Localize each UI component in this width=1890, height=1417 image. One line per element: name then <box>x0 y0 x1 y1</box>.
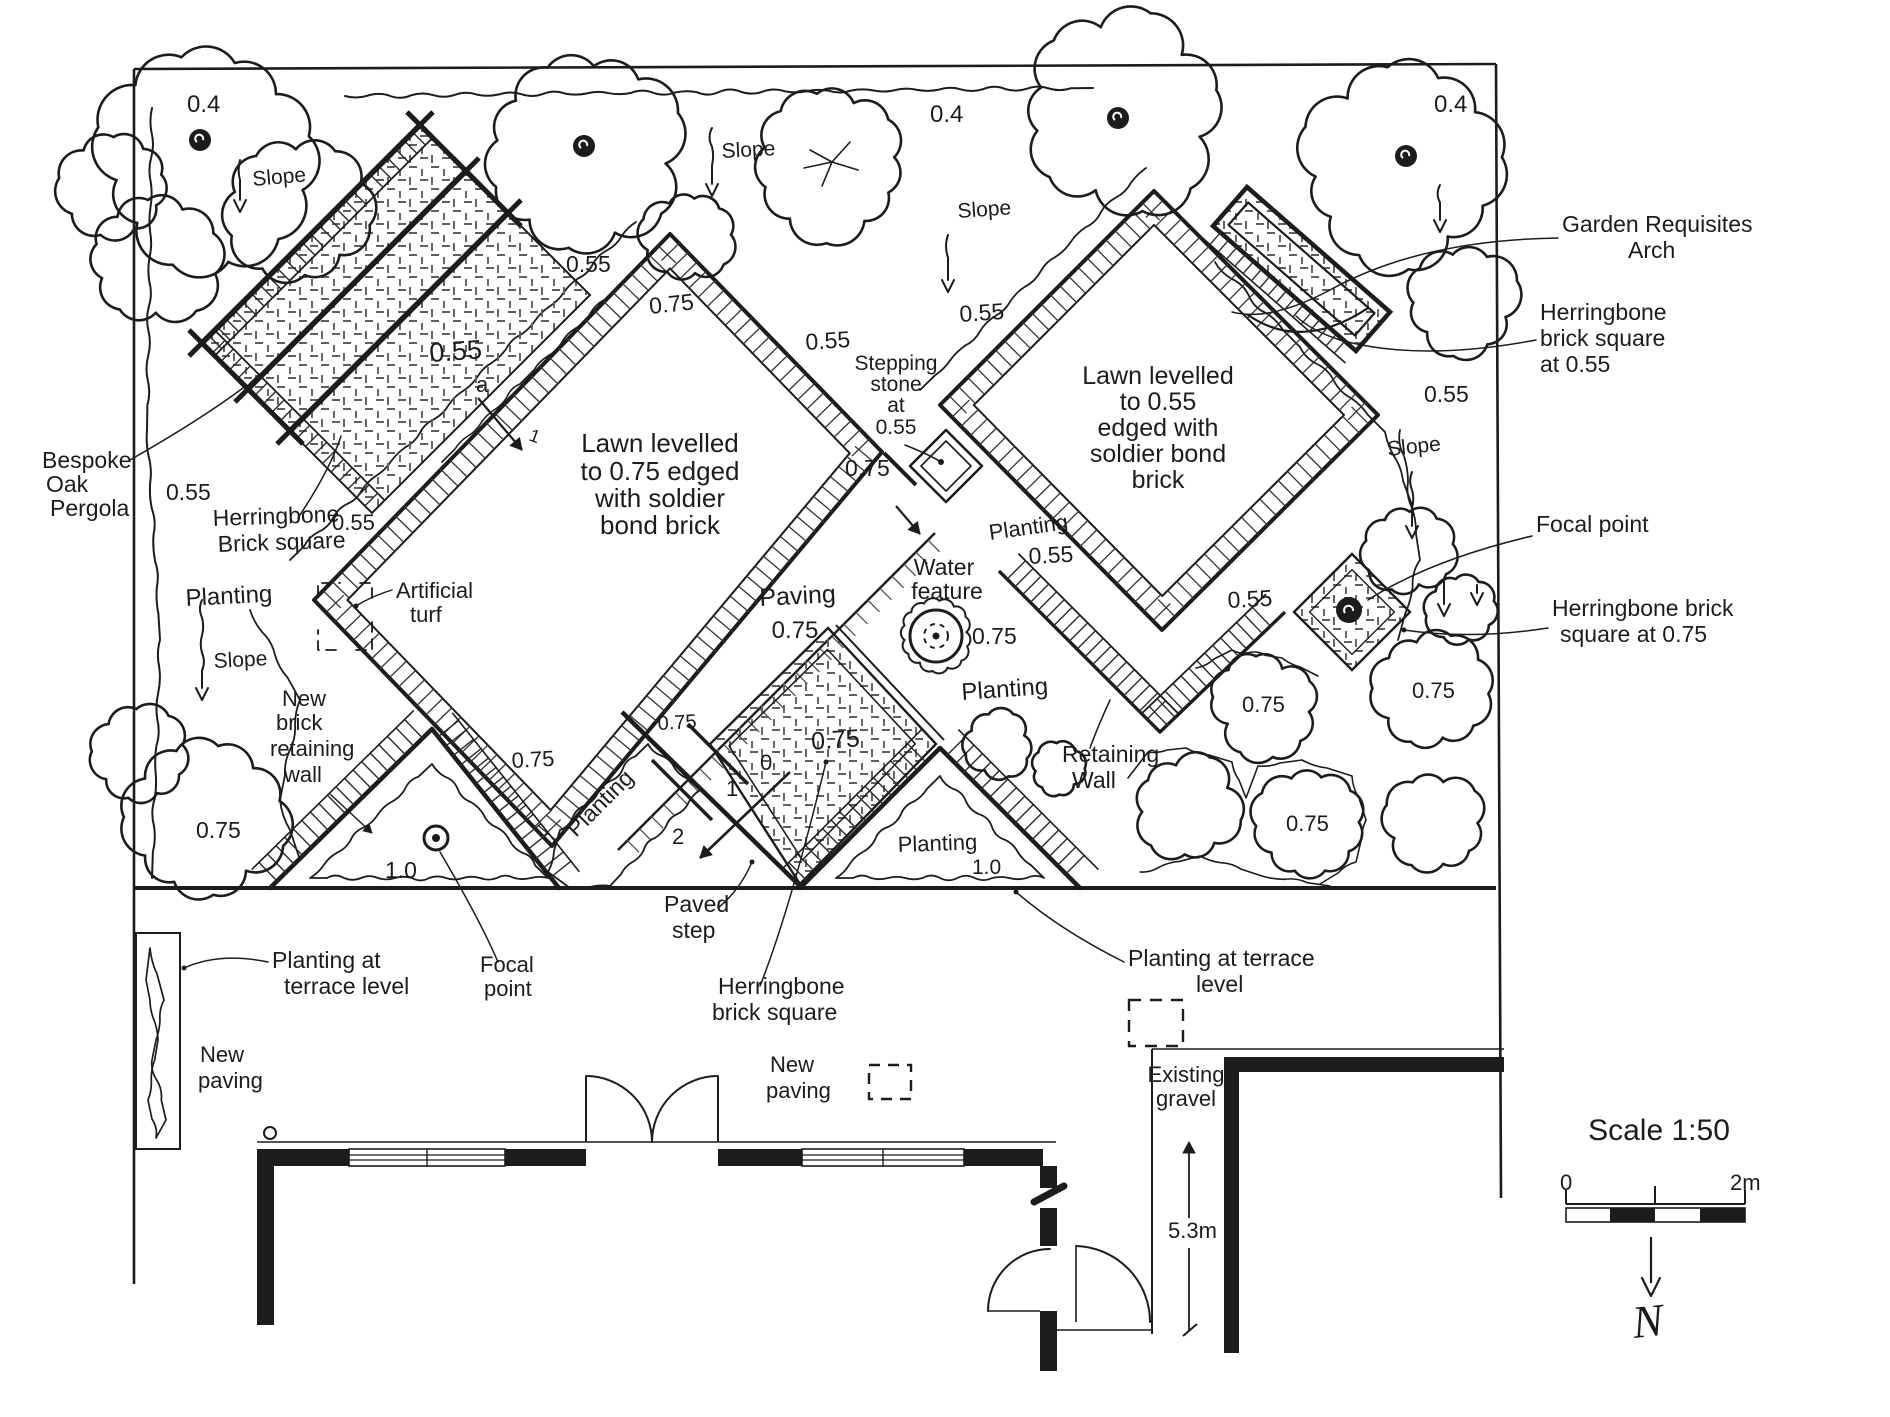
svg-text:level: level <box>1196 971 1243 997</box>
svg-text:feature: feature <box>911 578 983 604</box>
svg-text:0.75: 0.75 <box>972 623 1017 649</box>
svg-text:Paved: Paved <box>664 891 729 917</box>
svg-text:with soldier: with soldier <box>594 483 725 513</box>
svg-text:0.75: 0.75 <box>845 455 890 481</box>
svg-text:0.4: 0.4 <box>1434 91 1467 118</box>
svg-text:Brick square: Brick square <box>217 527 346 557</box>
svg-text:New: New <box>770 1052 814 1077</box>
svg-text:0.55: 0.55 <box>805 326 851 355</box>
svg-text:Paving: Paving <box>759 580 837 612</box>
svg-text:0.75: 0.75 <box>810 724 861 755</box>
svg-text:0.75: 0.75 <box>657 711 697 735</box>
svg-text:0.75: 0.75 <box>511 746 555 773</box>
svg-text:bond brick: bond brick <box>600 510 721 540</box>
svg-text:brick: brick <box>276 710 323 735</box>
svg-text:0.55: 0.55 <box>428 334 483 368</box>
svg-text:turf: turf <box>410 602 443 627</box>
svg-text:0.75: 0.75 <box>196 817 241 843</box>
svg-text:Planting: Planting <box>185 580 273 612</box>
svg-text:brick square: brick square <box>712 999 837 1025</box>
svg-text:paving: paving <box>198 1068 263 1093</box>
svg-text:0: 0 <box>1560 1170 1572 1195</box>
svg-text:Lawn levelled: Lawn levelled <box>1082 362 1234 390</box>
svg-text:wall: wall <box>283 762 322 787</box>
svg-text:New: New <box>200 1042 244 1067</box>
svg-text:0: 0 <box>760 750 772 775</box>
svg-text:Scale 1:50: Scale 1:50 <box>1588 1114 1730 1147</box>
svg-text:stone: stone <box>870 373 921 396</box>
svg-text:1: 1 <box>726 776 738 801</box>
svg-text:Focal point: Focal point <box>1536 511 1649 537</box>
svg-text:at: at <box>887 394 905 417</box>
svg-text:Planting at: Planting at <box>272 947 381 973</box>
svg-text:2: 2 <box>672 824 684 849</box>
svg-text:Lawn levelled: Lawn levelled <box>581 428 739 458</box>
svg-text:0.75: 0.75 <box>648 288 695 319</box>
svg-text:step: step <box>672 917 715 943</box>
svg-text:Wall: Wall <box>1072 767 1116 793</box>
svg-text:at 0.55: at 0.55 <box>1540 351 1610 377</box>
svg-text:Water: Water <box>914 554 975 580</box>
svg-text:Existing: Existing <box>1147 1062 1224 1087</box>
svg-text:Slope: Slope <box>721 137 776 163</box>
svg-text:0.55: 0.55 <box>566 251 611 277</box>
svg-text:1.0: 1.0 <box>385 857 417 883</box>
svg-text:square at 0.75: square at 0.75 <box>1560 621 1707 647</box>
svg-text:Artificial: Artificial <box>396 578 473 603</box>
svg-text:Herringbone: Herringbone <box>718 973 845 999</box>
svg-text:0.55: 0.55 <box>1028 541 1074 569</box>
svg-text:2m: 2m <box>1730 1170 1761 1195</box>
svg-text:0.55: 0.55 <box>876 416 917 439</box>
svg-text:0.75: 0.75 <box>1286 811 1329 836</box>
svg-text:New: New <box>282 686 326 711</box>
svg-text:0.55: 0.55 <box>959 298 1005 327</box>
svg-text:Focal: Focal <box>480 952 534 977</box>
svg-text:Planting at terrace: Planting at terrace <box>1128 945 1315 971</box>
svg-text:to 0.55: to 0.55 <box>1120 388 1196 416</box>
svg-text:0.75: 0.75 <box>1412 678 1455 703</box>
svg-text:1.0: 1.0 <box>972 856 1001 879</box>
svg-text:0.55: 0.55 <box>332 510 375 535</box>
svg-text:Arch: Arch <box>1628 237 1675 263</box>
svg-text:0.4: 0.4 <box>187 91 220 118</box>
svg-text:0.75: 0.75 <box>1242 692 1285 717</box>
svg-text:point: point <box>484 976 532 1001</box>
svg-text:edged with: edged with <box>1098 414 1219 442</box>
svg-text:5.3m: 5.3m <box>1168 1218 1217 1243</box>
svg-text:Herringbone: Herringbone <box>1540 299 1667 325</box>
svg-text:Stepping: Stepping <box>855 352 938 375</box>
svg-text:Planting: Planting <box>897 829 977 857</box>
svg-text:retaining: retaining <box>270 736 354 761</box>
svg-text:0.55: 0.55 <box>1227 585 1273 613</box>
svg-text:Slope: Slope <box>251 163 307 191</box>
svg-text:Pergola: Pergola <box>50 495 129 521</box>
svg-text:to 0.75 edged: to 0.75 edged <box>580 456 739 486</box>
svg-text:0.55: 0.55 <box>166 479 211 505</box>
svg-text:Slope: Slope <box>957 196 1012 223</box>
svg-text:soldier bond: soldier bond <box>1090 440 1226 468</box>
svg-text:0.4: 0.4 <box>930 101 963 128</box>
svg-text:brick: brick <box>1132 466 1185 494</box>
svg-text:0.55: 0.55 <box>1424 381 1469 407</box>
svg-text:Herringbone brick: Herringbone brick <box>1552 595 1734 621</box>
svg-text:brick square: brick square <box>1540 325 1665 351</box>
svg-text:gravel: gravel <box>1156 1086 1216 1111</box>
svg-text:0.75: 0.75 <box>772 617 819 644</box>
svg-text:Retaining: Retaining <box>1062 741 1159 767</box>
svg-text:a: a <box>476 372 489 397</box>
svg-text:terrace level: terrace level <box>284 973 409 999</box>
svg-text:Bespoke: Bespoke <box>42 447 132 473</box>
svg-text:Garden Requisites: Garden Requisites <box>1562 211 1753 237</box>
svg-text:Slope: Slope <box>213 647 268 673</box>
svg-text:Oak: Oak <box>46 471 89 497</box>
svg-text:paving: paving <box>766 1078 831 1103</box>
